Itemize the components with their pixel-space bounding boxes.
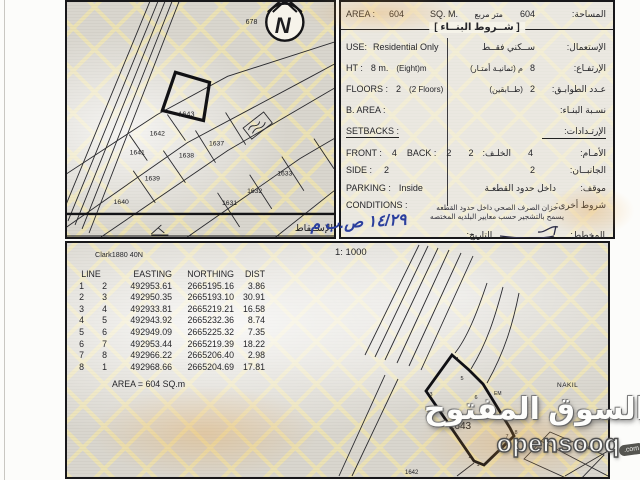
use-value-en: Residential Only xyxy=(373,42,439,52)
plot-label-1631: 1631 xyxy=(222,200,237,207)
vertex-7: 7 xyxy=(505,434,508,440)
side-label-ar: الجانبــان: xyxy=(542,165,606,176)
parking-value-ar: داخل حدود القطعـة xyxy=(484,183,556,194)
floors-row: FLOORS : 2 (2 Floors) عـدد الطوابـق: 2 (… xyxy=(341,84,613,96)
built-area-row: B. AREA : نسـبة البنـاء: xyxy=(341,105,613,117)
floors-note-en: (2 Floors) xyxy=(409,85,443,94)
height-label-en: HT : xyxy=(346,63,363,73)
plot-label-1639: 1639 xyxy=(145,176,160,183)
front-value-ar: 4 xyxy=(528,148,533,158)
north-arrow: N xyxy=(266,2,303,41)
built-area-label-en: B. AREA : xyxy=(346,105,386,115)
plot-label-1643: 1643 xyxy=(178,109,194,118)
building-terms-header: [ شــروط البنــاء ] xyxy=(429,22,525,33)
neighbor-plot-label: 1642 xyxy=(405,470,419,476)
back-value-ar: 2 xyxy=(468,148,473,158)
front-value-en: 4 xyxy=(392,148,397,158)
use-label-en: USE: xyxy=(346,42,367,52)
site-plan-drawing: 1 2 3 4 5 6 7 8 1643 EM NAKIL 1642 E.M xyxy=(67,243,608,477)
plot-label-1632: 1632 xyxy=(247,188,262,195)
em-label: EM xyxy=(494,391,502,397)
nakil-label: NAKIL xyxy=(557,382,578,389)
watermark-tld: .com xyxy=(618,442,640,456)
plot-label-1637: 1637 xyxy=(209,141,224,148)
plot-number-labels: 1643 1642 1637 1641 1638 1639 1640 1631 … xyxy=(114,109,293,206)
front-label-ar: الأمـام: xyxy=(542,148,606,159)
floors-label-en: FLOORS : xyxy=(346,84,388,94)
scan-edge-line xyxy=(4,0,5,480)
plot-label-1640: 1640 xyxy=(114,199,129,206)
vertex-3: 3 xyxy=(429,392,432,398)
scanned-plot-certificate: 1643 1642 1637 1641 1638 1639 1640 1631 … xyxy=(0,0,640,480)
site-plan-panel: 1: 1000 Clark1880 40N LINE EASTING NORTH… xyxy=(65,241,610,479)
area-value-ar: 604 xyxy=(520,9,535,19)
plot-label-1638: 1638 xyxy=(179,153,194,160)
side-row: SIDE : 2 الجانبــان: 2 xyxy=(341,165,613,177)
back-label-ar: الخلـف: xyxy=(482,148,511,159)
height-note-ar: م (ثمانيـة أمتـار) xyxy=(470,64,523,73)
vertex-6: 6 xyxy=(474,395,477,401)
road-lines xyxy=(339,245,608,476)
area-unit-en: SQ. M. xyxy=(430,9,458,19)
plot-1643-outline xyxy=(426,355,514,465)
plot-label-1641: 1641 xyxy=(130,150,145,157)
conditions-label-en: CONDITIONS : xyxy=(346,200,408,210)
plot-label-1642: 1642 xyxy=(150,131,165,138)
landmark-symbol xyxy=(243,112,272,139)
north-letter: N xyxy=(275,13,292,38)
vertex-5: 5 xyxy=(460,376,463,382)
location-map-panel: 1643 1642 1637 1641 1638 1639 1640 1631 … xyxy=(65,0,336,239)
height-note-en: (Eight)m xyxy=(396,64,426,73)
utility-symbol xyxy=(151,225,168,235)
area-unit-ar: متر مربع xyxy=(474,10,503,19)
setbacks-label-ar: الإرتـدادات: xyxy=(542,126,606,139)
side-value-en: 2 xyxy=(384,165,389,175)
side-value-ar: 2 xyxy=(530,165,535,175)
planner-signature xyxy=(498,224,564,238)
back-value-en: 2 xyxy=(446,148,451,158)
area-row: AREA : 604 SQ. M. المساحة: 604 متر مربع xyxy=(341,9,613,21)
parking-row: PARKING : Inside موقف: داخل حدود القطعـة xyxy=(341,183,613,195)
front-label-en: FRONT : xyxy=(346,148,382,158)
date-label: التاريخ: xyxy=(466,230,492,241)
parking-label-ar: موقف: xyxy=(566,183,606,194)
parking-label-en: PARKING : xyxy=(346,183,391,193)
floors-value-en: 2 xyxy=(396,84,401,94)
side-label-en: SIDE : xyxy=(346,165,372,175)
height-label-ar: الإرتفـاع: xyxy=(542,63,606,74)
vertex-4: 4 xyxy=(455,357,458,363)
location-map-drawing: 1643 1642 1637 1641 1638 1639 1640 1631 … xyxy=(67,2,334,237)
area-label-en: AREA : xyxy=(346,9,375,19)
em2-label: E.M xyxy=(583,443,593,451)
building-conditions-panel: AREA : 604 SQ. M. المساحة: 604 متر مربع … xyxy=(339,0,615,239)
height-value-en: 8 m. xyxy=(371,63,389,73)
area-value-en: 604 xyxy=(389,9,404,19)
vertex-1: 1 xyxy=(476,462,479,468)
plot-number-label: 1643 xyxy=(449,421,472,432)
use-row: USE: Residential Only الإستعمال: ســكني … xyxy=(341,42,613,54)
plot-label-1633: 1633 xyxy=(277,171,292,178)
neighbor-plot-outline xyxy=(524,432,604,477)
floors-note-ar: (طــابقين) xyxy=(489,85,523,94)
vertex-8: 8 xyxy=(514,430,517,436)
height-value-ar: 8 xyxy=(530,63,535,73)
height-row: HT : 8 m. (Eight)m الإرتفـاع: 8 م (ثماني… xyxy=(341,63,613,75)
planner-date-row: المخطط: التاريخ: xyxy=(466,224,605,241)
back-label-en: BACK : xyxy=(407,148,437,158)
floors-label-ar: عـدد الطوابـق: xyxy=(542,84,606,95)
vertex-2: 2 xyxy=(468,454,471,460)
use-label-ar: الإستعمال: xyxy=(542,42,606,53)
use-value-ar: ســكني فقــط xyxy=(482,42,535,53)
setbacks-label-en: SETBACKS : xyxy=(346,126,399,138)
setbacks-row: SETBACKS : الإرتـدادات: xyxy=(341,126,613,138)
floors-value-ar: 2 xyxy=(530,84,535,94)
parking-value-en: Inside xyxy=(399,183,423,193)
front-back-row: FRONT : 4 BACK : 2 الأمـام: 4 الخلـف: 2 xyxy=(341,148,613,160)
area-label-ar: المساحة: xyxy=(542,9,606,20)
planner-label: المخطط: xyxy=(570,230,605,241)
built-area-label-ar: نسـبة البنـاء: xyxy=(542,105,606,116)
block-number: 678 xyxy=(246,19,258,26)
